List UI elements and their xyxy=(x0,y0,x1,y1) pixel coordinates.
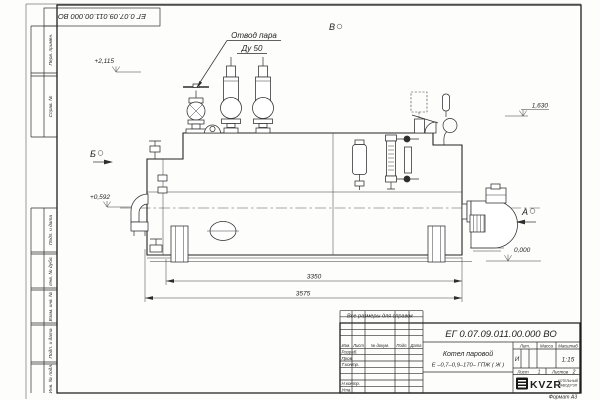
kvzr-logo-sub1: КОТЕЛЬНЫЙ xyxy=(558,379,579,383)
row-prov: Пров. xyxy=(342,356,354,361)
elevation-value: 0,000 xyxy=(514,247,531,254)
dimension-value: 3575 xyxy=(296,291,311,298)
margin-label: Подп. и дата xyxy=(48,328,54,358)
row-utv: Утв. xyxy=(342,387,352,392)
elevation-value: +0,592 xyxy=(90,194,110,201)
margin-label: Взам. инв. № xyxy=(48,292,54,322)
col-izm: Изм. xyxy=(342,343,351,348)
margin-label: Инв. № подл. xyxy=(48,364,54,394)
sheet-label: Лист xyxy=(516,370,529,375)
front-nozzle xyxy=(158,187,167,193)
sheets-value: 2 xyxy=(572,370,576,376)
row-razrab: Разраб. xyxy=(342,350,358,355)
kvzr-logo-sub2: ЗАВОД РЭП xyxy=(559,384,578,388)
front-nozzle xyxy=(158,175,167,181)
sheet-value: 1 xyxy=(538,370,541,376)
lit-value: И xyxy=(515,357,520,363)
dimension-value: 3350 xyxy=(307,274,322,281)
margin-label: Перв. примен. xyxy=(48,34,54,66)
col-podp: Подп. xyxy=(396,343,407,348)
product-name: Котел паровой xyxy=(443,350,493,358)
drawing-canvas: Перв. примен. Справ. № Подп. и дата Инв.… xyxy=(0,0,600,400)
row-nkontr: Н.контр. xyxy=(342,381,361,386)
margin-label: Справ. № xyxy=(48,96,54,118)
format-note: Формат А3 xyxy=(549,395,577,400)
margin-label: Подп. и дата xyxy=(48,215,54,245)
scale-header: Масштаб xyxy=(558,344,578,349)
col-doc: № докум. xyxy=(371,343,389,348)
view-letter: Б xyxy=(90,149,96,159)
row-tkontr: Т.контр. xyxy=(342,362,360,367)
lit-header: Лит. xyxy=(519,344,530,349)
sheets-label: Листов xyxy=(551,370,569,375)
elevation-value: +2,115 xyxy=(94,58,114,65)
product-model: Е –0,7–0,9–170– ГПЖ ( Ж ) xyxy=(432,363,505,369)
margin-label: Инв. № дубл. xyxy=(48,256,54,286)
top-stamp: ЕГ 0.07.09.011.00.000 ВО xyxy=(58,12,146,21)
view-letter: А xyxy=(521,207,528,217)
col-data: Дата xyxy=(409,343,422,348)
doc-designation: ЕГ 0.07.09.011.00.000 ВО xyxy=(445,329,557,340)
col-list: Лист xyxy=(352,343,364,348)
elevation-value: 1,630 xyxy=(532,103,549,110)
view-letter: В xyxy=(329,22,335,32)
steam-outlet-dn: Ду 50 xyxy=(241,44,263,53)
scale-value: 1:15 xyxy=(562,357,575,364)
steam-outlet-text: Отвод пара xyxy=(231,31,277,40)
mass-header: Масса xyxy=(540,344,554,349)
